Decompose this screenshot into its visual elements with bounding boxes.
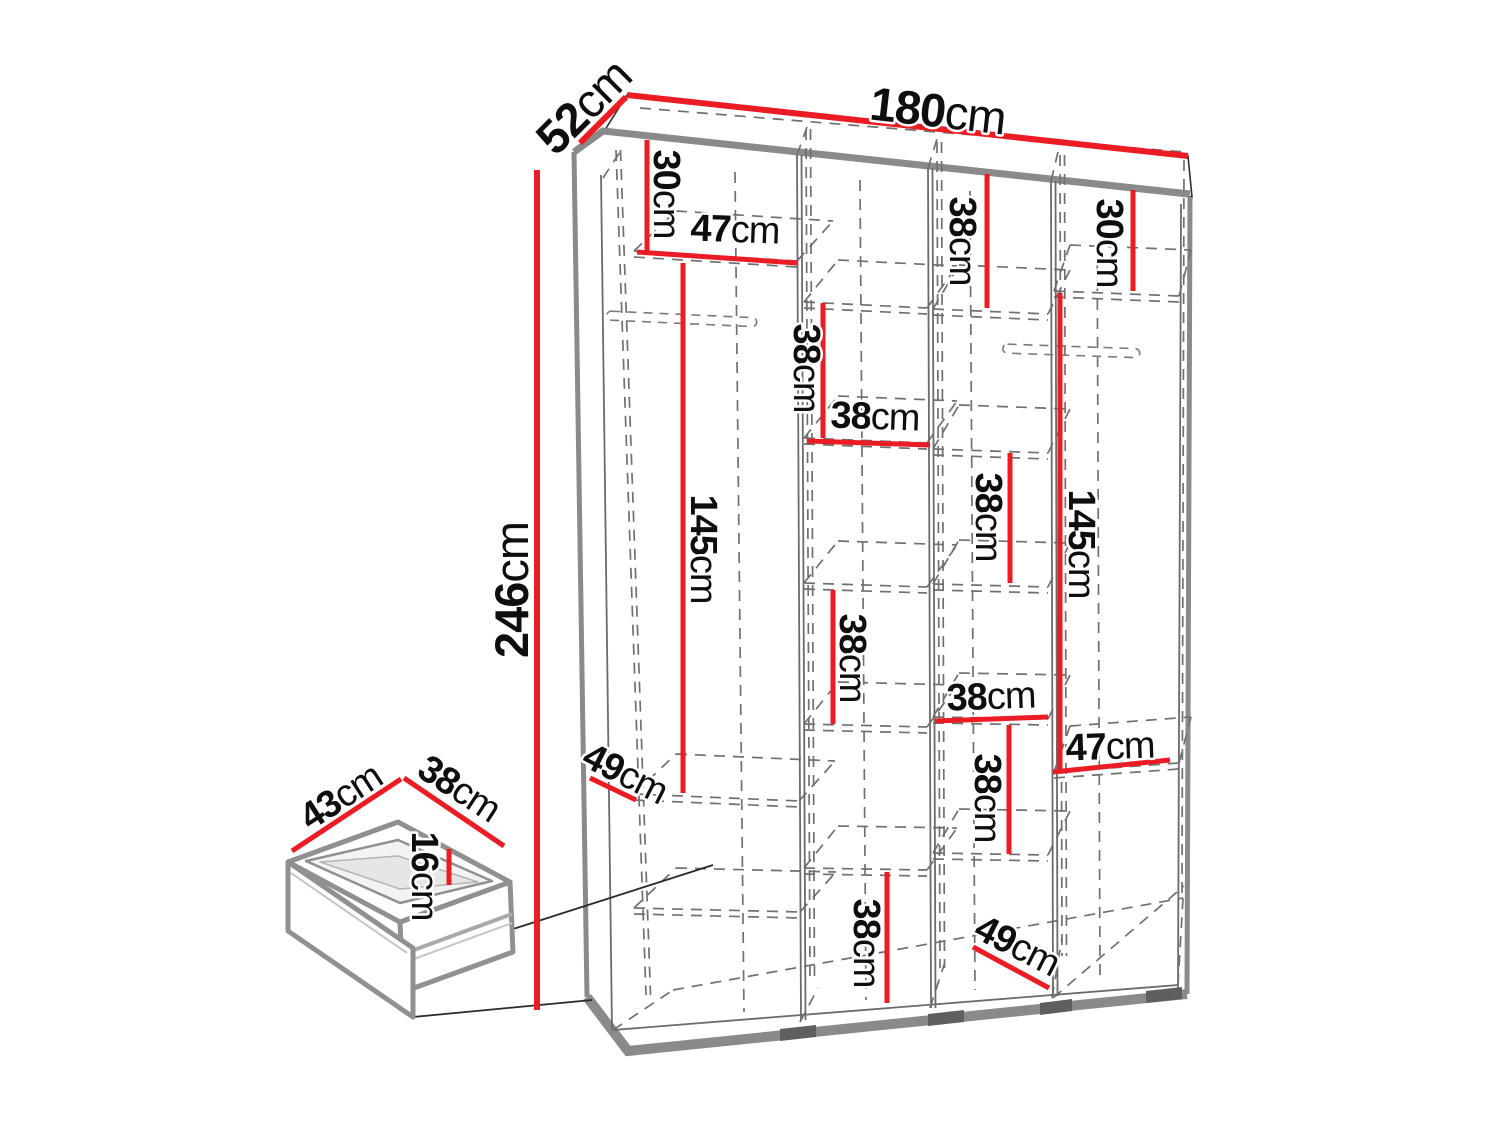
dim-s4-top-label: 30cm bbox=[1088, 199, 1130, 288]
construction-line bbox=[811, 129, 815, 980]
construction-line bbox=[933, 449, 1048, 453]
left-outer-edge bbox=[574, 152, 587, 997]
construction-line bbox=[806, 129, 810, 980]
dim-s3-lower-label: 38cm bbox=[966, 754, 1008, 843]
construction-line bbox=[1056, 181, 1058, 996]
dim-s2-bottom-label: 38cm bbox=[845, 899, 887, 988]
construction-line bbox=[927, 828, 957, 870]
dim-s1-width-label: 47cm bbox=[690, 207, 780, 252]
drawer-leader-line-upper bbox=[510, 865, 713, 930]
construction-line bbox=[797, 155, 801, 1020]
right-outer-edge bbox=[1187, 197, 1190, 994]
construction-line bbox=[933, 405, 959, 449]
dim-s2-mid-label: 38cm bbox=[831, 614, 873, 703]
dim-overall-height-label: 246cm bbox=[485, 522, 538, 658]
construction-line bbox=[838, 260, 957, 266]
construction-line bbox=[613, 990, 673, 1030]
construction-line bbox=[1051, 181, 1053, 996]
construction-line bbox=[800, 988, 818, 1022]
construction-line bbox=[676, 754, 835, 761]
construction-line bbox=[933, 723, 1048, 725]
construction-line bbox=[933, 584, 1048, 587]
wardrobe-partitions bbox=[797, 129, 1067, 1020]
construction-line bbox=[1054, 291, 1179, 296]
right-inner-edge bbox=[1178, 204, 1181, 989]
dim-s4-hanging-label: 145cm bbox=[1060, 489, 1102, 598]
construction-line bbox=[804, 724, 927, 727]
construction-line bbox=[802, 155, 806, 1020]
drawer-leader-line-lower bbox=[413, 1000, 592, 1017]
construction-line bbox=[933, 540, 959, 584]
construction-line bbox=[1053, 886, 1184, 998]
dim-s1-top-label: 30cm bbox=[645, 150, 687, 239]
construction-line bbox=[933, 859, 1048, 861]
construction-line bbox=[634, 914, 800, 918]
drawer-illustration bbox=[288, 822, 513, 1017]
construction-line bbox=[1182, 160, 1184, 895]
construction-line bbox=[933, 309, 1048, 314]
construction-line bbox=[804, 541, 838, 583]
construction-line bbox=[673, 898, 1183, 990]
construction-line bbox=[933, 590, 1048, 593]
construction-line bbox=[804, 583, 927, 587]
construction-line bbox=[933, 455, 1048, 459]
dim-s2-top-label: 38cm bbox=[785, 324, 827, 413]
construction-line bbox=[1054, 297, 1179, 302]
wardrobe-dimension-diagram: 180cm 52cm 246cm 30cm 47cm 145cm 49cm 38… bbox=[0, 0, 1500, 1125]
diagram-canvas: 180cm 52cm 246cm 30cm 47cm 145cm 49cm 38… bbox=[0, 0, 1500, 1125]
dim-drawer-width-label: 43cm bbox=[292, 755, 389, 839]
construction-line bbox=[933, 315, 1048, 320]
hanging-rail-right bbox=[1003, 344, 1140, 358]
left-inner-edge bbox=[601, 175, 612, 1030]
dim-s3-width-label: 38cm bbox=[946, 674, 1036, 719]
construction-line bbox=[621, 150, 651, 995]
construction-line bbox=[933, 168, 936, 1008]
construction-line bbox=[804, 260, 838, 302]
construction-line bbox=[735, 172, 744, 1012]
construction-line bbox=[804, 589, 927, 593]
construction-line bbox=[860, 180, 866, 1000]
construction-line bbox=[634, 908, 800, 912]
construction-line bbox=[933, 853, 1048, 855]
dim-s3-top-label: 38cm bbox=[941, 197, 983, 286]
dim-drawer-height-label: 16cm bbox=[403, 832, 445, 921]
construction-line bbox=[930, 962, 945, 1008]
construction-line bbox=[804, 730, 927, 733]
dim-s1-depth-label: 49cm bbox=[576, 735, 674, 813]
dim-s3-upper-label: 38cm bbox=[967, 473, 1009, 562]
dimension-labels: 180cm 52cm 246cm 30cm 47cm 145cm 49cm 38… bbox=[292, 48, 1155, 987]
construction-line bbox=[928, 168, 931, 1008]
dim-s2-width-label: 38cm bbox=[830, 394, 920, 439]
construction-line bbox=[616, 150, 646, 995]
construction-line bbox=[959, 405, 1070, 409]
dim-s1-hanging-label: 145cm bbox=[682, 494, 724, 603]
dim-s4-width-label: 47cm bbox=[1065, 724, 1155, 769]
